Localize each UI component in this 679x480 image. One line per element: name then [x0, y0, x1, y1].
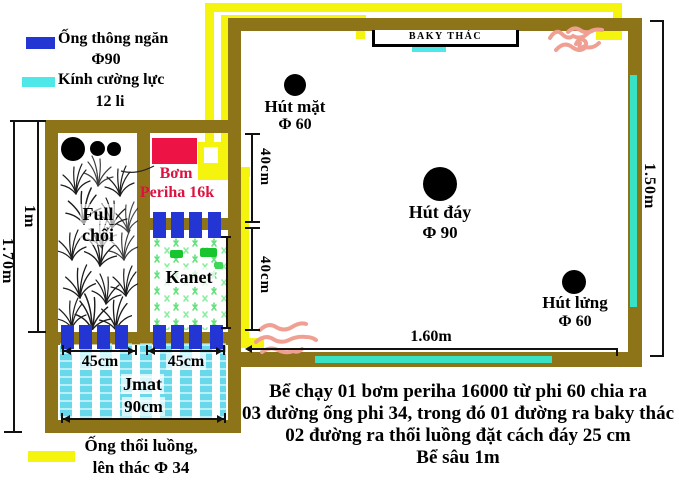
- legend-cyan-size: 12 li: [88, 94, 132, 111]
- dim-line-160: [249, 348, 618, 350]
- dim-label-150: 1.50m: [640, 163, 658, 209]
- dim-tick: [221, 327, 231, 329]
- dim-line-45-left: [63, 350, 137, 352]
- dim-tick: [223, 345, 225, 355]
- legend-yellow-line2: lên thác Φ 34: [84, 459, 198, 477]
- pipe-tank-down: [240, 167, 249, 341]
- dim-tick: [616, 348, 618, 356]
- dim-tick: [10, 120, 46, 122]
- notes-line-4: Bể sâu 1m: [240, 447, 676, 469]
- arrowhead-right: [217, 415, 224, 423]
- surface-suction-label: Hút mặt: [252, 98, 338, 116]
- blue-pipe: [189, 212, 202, 238]
- dim-line-150: [662, 21, 664, 357]
- jmat-dim-45-left: 45cm: [66, 354, 134, 371]
- arrowhead-left: [148, 347, 155, 355]
- dim-tick: [135, 345, 137, 355]
- splash-squiggle-top-right: [546, 22, 608, 60]
- arrowhead-left: [63, 415, 70, 423]
- pump-pointer-line: [120, 162, 155, 176]
- notes-line-1: Bể chạy 01 bơm periha 16000 từ phi 60 ch…: [240, 381, 676, 403]
- tank-wall-left: [228, 18, 241, 433]
- blue-pipe: [208, 212, 221, 238]
- blue-pipe: [153, 325, 166, 349]
- dim-label-170: 1.70m: [0, 238, 16, 284]
- full-choi-label-line2: chổi: [69, 226, 127, 245]
- legend-swatch-blue: [26, 37, 55, 49]
- dim-line-45-right: [147, 350, 225, 352]
- blue-pipe: [171, 325, 184, 349]
- filter-wall-left: [45, 120, 58, 433]
- notes-block: Bể chạy 01 bơm periha 16000 từ phi 60 ch…: [240, 381, 676, 469]
- glass-strip-right: [630, 75, 637, 307]
- dim-tick: [650, 20, 664, 22]
- dim-tick: [224, 413, 226, 423]
- dim-tick: [650, 355, 664, 357]
- dim-label-40-bottom: 40cm: [256, 256, 273, 294]
- legend-swatch-cyan: [22, 77, 55, 87]
- surface-suction-size: Φ 60: [262, 117, 328, 134]
- filter-dot-small: [107, 142, 121, 156]
- dim-tick: [245, 329, 260, 331]
- dim-line-90: [62, 418, 226, 420]
- dim-line-40-bottom: [251, 228, 253, 330]
- filter-wall-bottom: [45, 420, 241, 433]
- pump-connector-notch: [204, 147, 218, 163]
- filter-wall-top: [45, 120, 241, 133]
- blue-pipe: [97, 325, 110, 349]
- bottom-suction-label: Hút đáy: [399, 203, 481, 222]
- mid-suction-label: Hút lửng: [531, 294, 619, 312]
- surface-suction-dot: [284, 74, 306, 96]
- aquarium-layout-diagram: BAKY THÁC: [0, 0, 679, 480]
- dim-tick: [245, 133, 260, 135]
- arrowhead-right: [128, 347, 135, 355]
- legend-blue-label: Ống thông ngăn: [58, 31, 176, 48]
- glass-strip-baky: [412, 47, 446, 52]
- kanet-label: Kanet: [150, 268, 228, 287]
- legend-yellow-line1: Ống thổi luồng,: [80, 437, 202, 455]
- notes-line-3: 02 đường ra thổi luồng đặt cách đáy 25 c…: [240, 425, 676, 447]
- mid-suction-size: Φ 60: [541, 314, 609, 331]
- filter-dot-large: [61, 137, 85, 161]
- dim-tick: [245, 227, 260, 229]
- blue-pipe: [189, 325, 202, 349]
- baky-thac-label: BAKY THÁC: [372, 32, 519, 43]
- dim-tick: [245, 221, 260, 223]
- arrowhead-left: [64, 347, 71, 355]
- dim-line-kanet: [226, 237, 228, 329]
- mid-suction-dot: [562, 270, 586, 294]
- dim-tick: [28, 331, 46, 333]
- blue-pipe: [171, 212, 184, 238]
- dim-label-40-top: 40cm: [256, 148, 273, 186]
- bottom-suction-size: Φ 90: [405, 224, 475, 242]
- full-choi-label-line1: Full: [69, 205, 127, 224]
- blue-pipe: [115, 325, 128, 349]
- jmat-label: Jmat: [105, 375, 180, 394]
- pump-label-line2: Periha 16k: [135, 185, 219, 202]
- bottom-suction-dot: [423, 167, 457, 201]
- blue-pipe: [79, 325, 92, 349]
- pipe-top-outer: [205, 3, 622, 12]
- notes-line-2: 03 đường ống phi 34, trong đó 01 đường r…: [240, 403, 676, 425]
- jmat-dim-90: 90cm: [106, 398, 181, 416]
- jmat-dim-45-right: 45cm: [152, 354, 220, 371]
- legend-cyan-label: Kính cường lực: [58, 72, 176, 89]
- dim-tick: [221, 236, 231, 238]
- legend-blue-size: Φ90: [84, 52, 128, 69]
- dim-line-40-top: [251, 134, 253, 222]
- splash-squiggle-bottom-left: [254, 318, 322, 358]
- blue-pipe: [153, 212, 166, 238]
- arrowhead-right: [216, 347, 223, 355]
- arrowhead-left: [245, 345, 252, 353]
- dim-tick: [4, 431, 22, 433]
- glass-strip-bottom: [315, 356, 552, 363]
- filter-dot-mid: [90, 141, 105, 156]
- pump-rect: [152, 138, 197, 164]
- dim-label-160: 1.60m: [398, 329, 464, 346]
- dim-label-1m: 1m: [20, 205, 38, 228]
- legend-swatch-yellow: [28, 451, 75, 462]
